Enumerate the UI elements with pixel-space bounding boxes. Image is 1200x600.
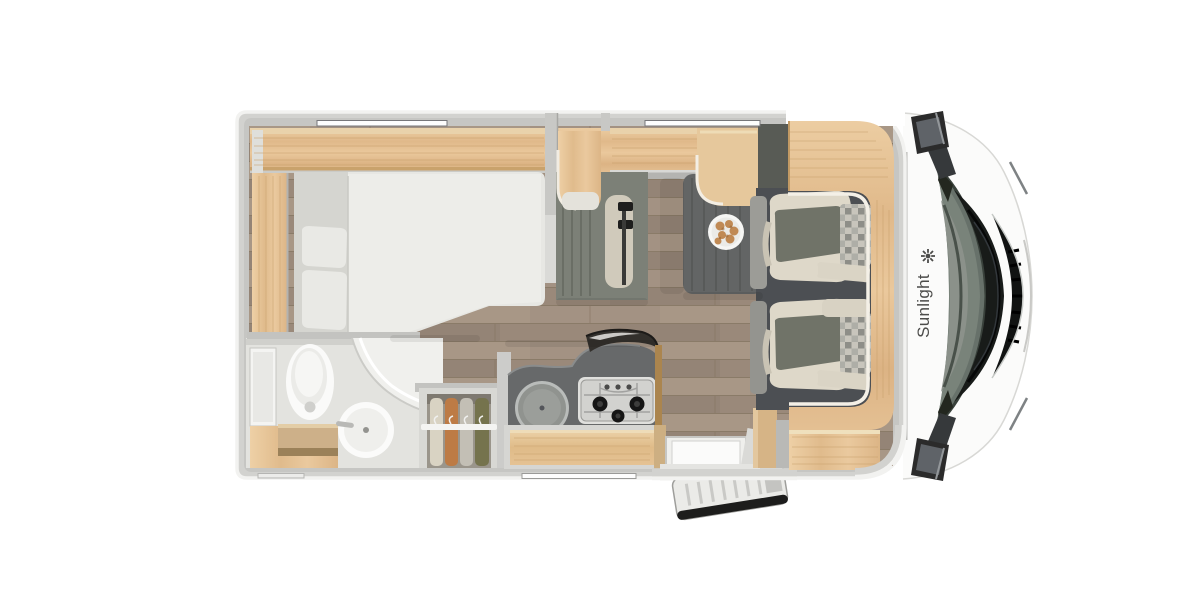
svg-text:Sunlight: Sunlight [914,274,933,338]
